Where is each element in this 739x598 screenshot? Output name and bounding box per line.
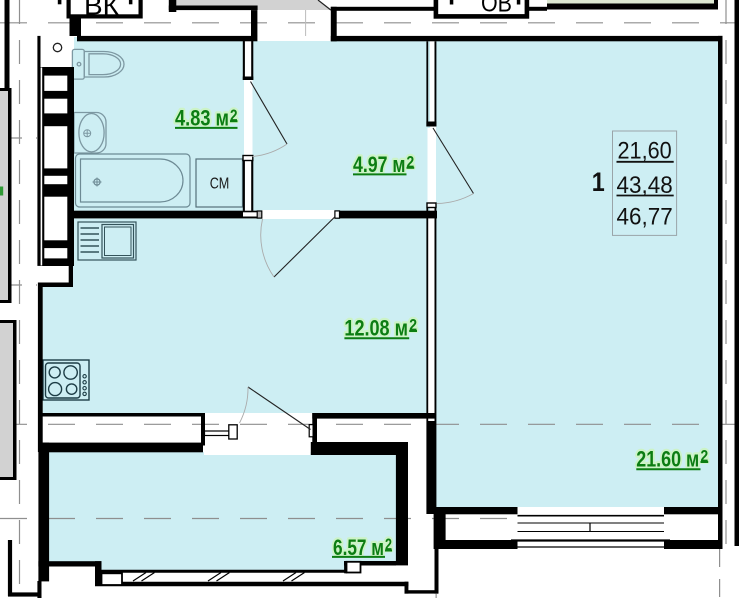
svg-text:1: 1 [592, 167, 605, 197]
svg-text:4.83 м: 4.83 м [175, 105, 229, 130]
svg-text:21,60: 21,60 [618, 138, 672, 165]
svg-text:ВК: ВК [84, 0, 119, 21]
svg-text:СМ: СМ [210, 176, 230, 193]
svg-text:46,77: 46,77 [617, 204, 673, 231]
svg-text:12.08 м: 12.08 м [344, 316, 408, 341]
svg-text:21.60 м: 21.60 м [636, 446, 699, 471]
svg-text:ОВ: ОВ [481, 0, 512, 18]
